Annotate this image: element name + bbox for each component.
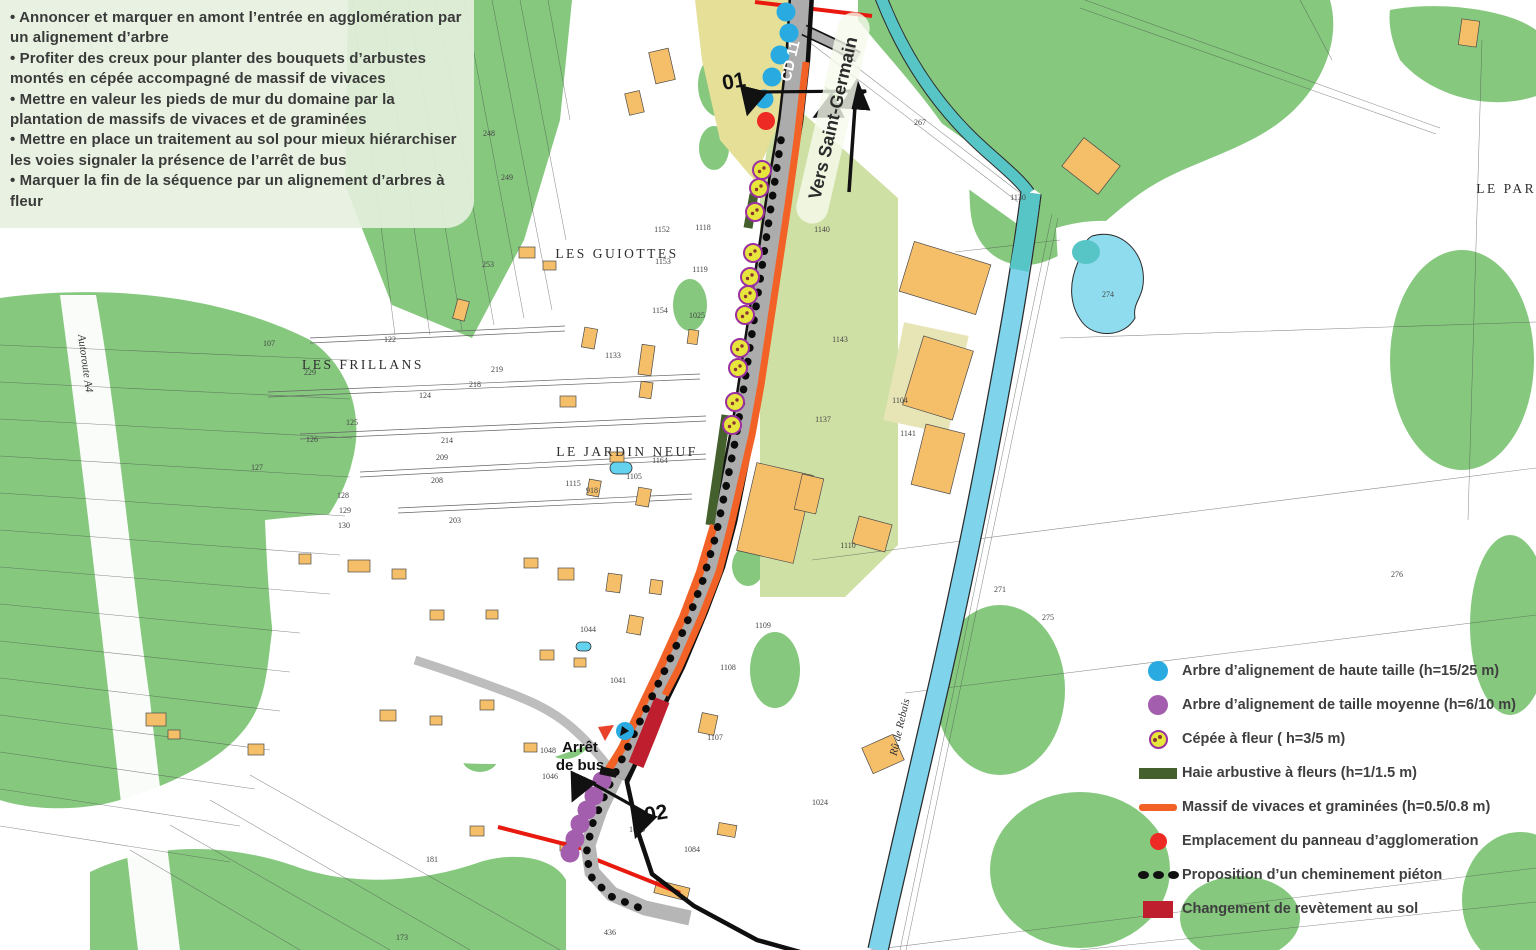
svg-text:130: 130 [338, 521, 350, 530]
svg-text:1137: 1137 [815, 415, 831, 424]
svg-text:218: 218 [469, 380, 481, 389]
svg-text:918: 918 [586, 486, 598, 495]
svg-text:1109: 1109 [755, 621, 771, 630]
panneau-marker [757, 112, 775, 130]
svg-text:1084: 1084 [684, 845, 700, 854]
point-02-label: 02 [643, 800, 670, 826]
haie-icon [1139, 768, 1177, 779]
svg-text:1085: 1085 [629, 825, 645, 834]
svg-text:1140: 1140 [814, 225, 830, 234]
annotation-list: Annoncer et marquer en amont l’entrée en… [10, 8, 462, 212]
svg-text:1024: 1024 [812, 798, 828, 807]
cepee-marker [744, 244, 762, 262]
svg-text:128: 128 [337, 491, 349, 500]
panneau-icon [1150, 833, 1167, 850]
legend-label: Cépée à fleur ( h=3/5 m) [1182, 731, 1345, 747]
legend-row-panneau: Emplacement du panneau d’agglomeration [1134, 830, 1534, 852]
svg-text:274: 274 [1102, 290, 1114, 299]
svg-text:127: 127 [251, 463, 263, 472]
svg-text:1141: 1141 [900, 429, 916, 438]
place-les-guiottes: LES GUIOTTES [555, 246, 678, 261]
svg-text:1118: 1118 [695, 223, 710, 232]
svg-text:436: 436 [604, 928, 616, 937]
point-01-label: 01 [720, 68, 747, 95]
svg-text:126: 126 [306, 435, 318, 444]
svg-text:1154: 1154 [652, 306, 668, 315]
dotted-path-icon [1138, 871, 1179, 879]
svg-text:248: 248 [483, 129, 495, 138]
legend-label: Emplacement du panneau d’agglomeration [1182, 833, 1479, 849]
legend-label: Proposition d’un cheminement piéton [1182, 867, 1442, 883]
cepee-marker [723, 416, 741, 434]
svg-text:203: 203 [449, 516, 461, 525]
blue-tree-marker [777, 3, 796, 22]
svg-text:267: 267 [914, 118, 926, 127]
svg-text:219: 219 [491, 365, 503, 374]
legend-row-massif: Massif de vivaces et graminées (h=0.5/0.… [1134, 796, 1534, 818]
cepee-marker [746, 203, 764, 221]
purple-tree-icon [1148, 695, 1168, 715]
cepee-marker [736, 306, 754, 324]
annotation-panel: Annoncer et marquer en amont l’entrée en… [0, 0, 474, 228]
svg-text:271: 271 [994, 585, 1006, 594]
cepee-icon [1149, 730, 1168, 749]
svg-text:1133: 1133 [605, 351, 621, 360]
svg-text:1110: 1110 [840, 541, 855, 550]
legend-label: Arbre d’alignement de taille moyenne (h=… [1182, 697, 1516, 713]
svg-text:1107: 1107 [707, 733, 723, 742]
svg-text:249: 249 [501, 173, 513, 182]
svg-text:125: 125 [346, 418, 358, 427]
svg-text:1130: 1130 [1010, 193, 1026, 202]
legend-row-cepee: Cépée à fleur ( h=3/5 m) [1134, 728, 1534, 750]
legend-label: Haie arbustive à fleurs (h=1/1.5 m) [1182, 765, 1417, 781]
small-pond [576, 642, 591, 651]
bus-stop-label-line1: Arrêt [562, 739, 598, 756]
svg-text:1044: 1044 [580, 625, 596, 634]
purple-tree-marker [561, 844, 580, 863]
cepee-marker [741, 268, 759, 286]
svg-text:1025: 1025 [689, 311, 705, 320]
cepee-marker [731, 339, 749, 357]
svg-text:124: 124 [419, 391, 431, 400]
svg-text:122: 122 [384, 335, 396, 344]
planning-map-page: 2671130274114011431104114111371110276271… [0, 0, 1536, 950]
svg-text:173: 173 [396, 933, 408, 942]
annotation-bullet: Mettre en valeur les pieds de mur du dom… [10, 90, 462, 131]
svg-text:214: 214 [441, 436, 453, 445]
annotation-bullet: Marquer la fin de la séquence par un ali… [10, 171, 462, 212]
svg-text:1152: 1152 [654, 225, 670, 234]
massif-icon [1139, 804, 1177, 811]
legend-row-arbre-moyenne: Arbre d’alignement de taille moyenne (h=… [1134, 694, 1534, 716]
svg-text:1105: 1105 [626, 472, 642, 481]
legend-label: Arbre d’alignement de haute taille (h=15… [1182, 663, 1499, 679]
legend-row-haie: Haie arbustive à fleurs (h=1/1.5 m) [1134, 762, 1534, 784]
legend-row-cheminement: Proposition d’un cheminement piéton [1134, 864, 1534, 886]
blue-tree-icon [1148, 661, 1168, 681]
annotation-bullet: Mettre en place un traitement au sol pou… [10, 130, 462, 171]
svg-text:1104: 1104 [892, 396, 908, 405]
svg-text:129: 129 [339, 506, 351, 515]
svg-text:107: 107 [263, 339, 275, 348]
legend-label: Massif de vivaces et graminées (h=0.5/0.… [1182, 799, 1490, 815]
bus-stop-label-line2: de bus [556, 757, 604, 774]
legend-row-arbre-haute: Arbre d’alignement de haute taille (h=15… [1134, 660, 1534, 682]
svg-text:253: 253 [482, 260, 494, 269]
cepee-marker [729, 359, 747, 377]
svg-text:1108: 1108 [720, 663, 736, 672]
cepee-marker [753, 161, 771, 179]
revetement-icon [1143, 901, 1173, 918]
svg-text:275: 275 [1042, 613, 1054, 622]
svg-text:1041: 1041 [610, 676, 626, 685]
svg-text:276: 276 [1391, 570, 1403, 579]
svg-text:1143: 1143 [832, 335, 848, 344]
place-les-frillans: LES FRILLANS [302, 357, 424, 372]
place-le-parc: LE PARC [1476, 181, 1536, 196]
annotation-bullet: Profiter des creux pour planter des bouq… [10, 49, 462, 90]
svg-text:1048: 1048 [540, 746, 556, 755]
svg-text:1119: 1119 [692, 265, 707, 274]
map-legend: Arbre d’alignement de haute taille (h=15… [1134, 660, 1534, 932]
legend-label: Changement de revètement au sol [1182, 901, 1418, 917]
cepee-marker [739, 286, 757, 304]
svg-text:208: 208 [431, 476, 443, 485]
svg-text:181: 181 [426, 855, 438, 864]
cepee-marker [750, 179, 768, 197]
svg-text:209: 209 [436, 453, 448, 462]
svg-text:1115: 1115 [565, 479, 580, 488]
legend-row-revetement: Changement de revètement au sol [1134, 898, 1534, 920]
cepee-marker [726, 393, 744, 411]
place-le-jardin-neuf: LE JARDIN NEUF [556, 444, 698, 459]
annotation-bullet: Annoncer et marquer en amont l’entrée en… [10, 8, 462, 49]
